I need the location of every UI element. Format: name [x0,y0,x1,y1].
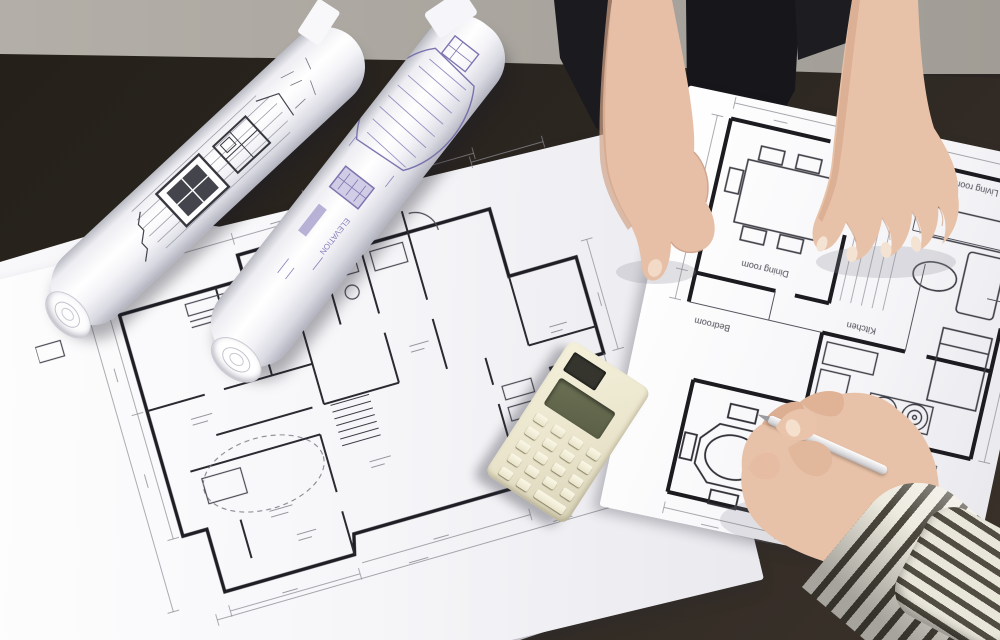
photo-stage: Dining room Entry Living room Kitchen Be… [0,0,1000,640]
label-bedroom-left: Bedroom [693,316,731,334]
label-dining-room: Dining room [740,259,790,280]
label-entry: Entry [876,173,899,188]
label-bedroom-right: bedroom [902,456,939,474]
label-living-room: Living room [952,178,1000,198]
label-kitchen: Kitchen [845,320,877,336]
label-elevation: ELEVATION [318,216,352,256]
